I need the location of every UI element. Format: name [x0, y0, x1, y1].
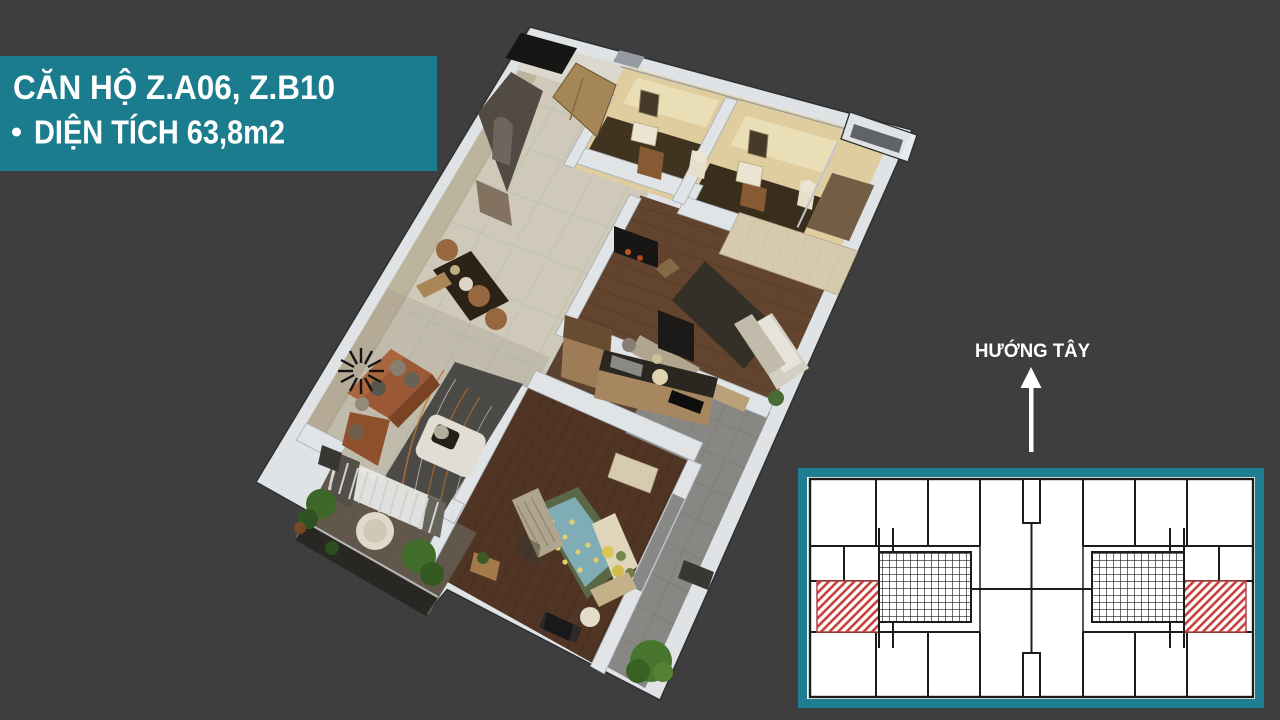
- svg-text:DIỆN TÍCH 63,8m2: DIỆN TÍCH 63,8m2: [34, 114, 285, 151]
- svg-text:HƯỚNG TÂY: HƯỚNG TÂY: [975, 340, 1090, 362]
- svg-text:CĂN HỘ Z.A06, Z.B10: CĂN HỘ Z.A06, Z.B10: [13, 68, 335, 107]
